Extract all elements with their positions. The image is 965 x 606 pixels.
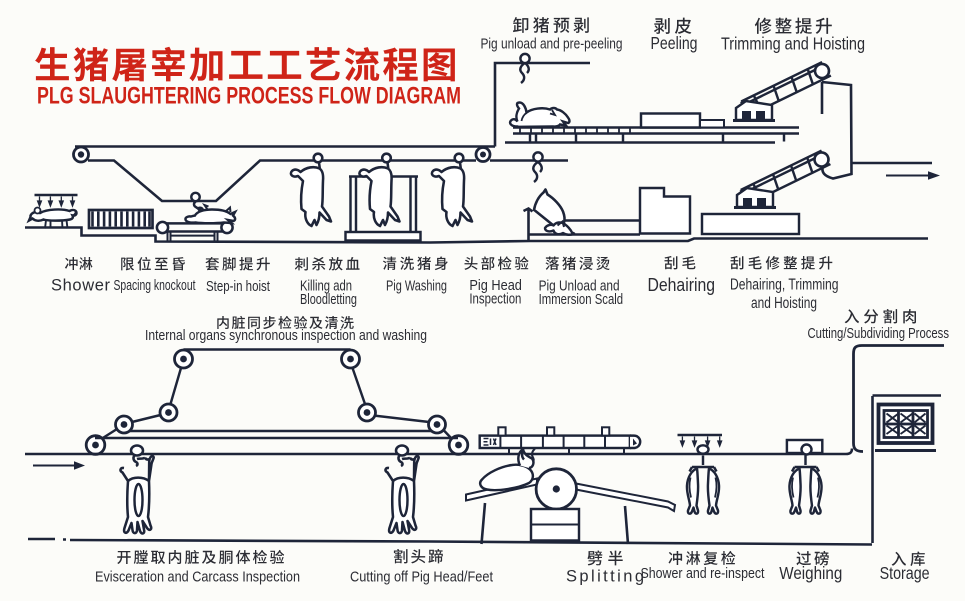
svg-text:PLG SLAUGHTERING PROCESS FLOW: PLG SLAUGHTERING PROCESS FLOW DIAGRAM [37, 83, 461, 110]
svg-text:Pig unload and pre-peeling: Pig unload and pre-peeling [481, 36, 623, 53]
svg-text:Shower: Shower [51, 277, 111, 295]
svg-text:Shower and re-inspect: Shower and re-inspect [641, 565, 766, 582]
svg-text:and Hoisting: and Hoisting [751, 295, 817, 312]
svg-text:Pig Washing: Pig Washing [386, 278, 447, 295]
svg-text:Dehairing, Trimming: Dehairing, Trimming [730, 277, 839, 294]
svg-text:Dehairing: Dehairing [648, 274, 716, 295]
svg-text:Spacing knockout: Spacing knockout [114, 277, 197, 294]
svg-text:Immersion Scald: Immersion Scald [539, 291, 624, 308]
svg-text:Weighing: Weighing [779, 563, 842, 583]
svg-text:Step-in hoist: Step-in hoist [206, 278, 271, 295]
svg-text:Internal organs synchronous in: Internal organs synchronous inspection a… [145, 328, 427, 344]
svg-text:Inspection: Inspection [469, 291, 521, 308]
svg-text:Peeling: Peeling [651, 33, 698, 53]
svg-text:Cutting/Subdividing Process: Cutting/Subdividing Process [808, 326, 950, 342]
svg-text:Trimming and Hoisting: Trimming and Hoisting [721, 34, 865, 54]
svg-text:Cutting off Pig Head/Feet: Cutting off Pig Head/Feet [350, 569, 494, 586]
svg-text:Bloodletting: Bloodletting [300, 291, 357, 308]
svg-text:Evisceration and Carcass Inspe: Evisceration and Carcass Inspection [95, 569, 300, 586]
svg-text:Storage: Storage [880, 563, 930, 583]
